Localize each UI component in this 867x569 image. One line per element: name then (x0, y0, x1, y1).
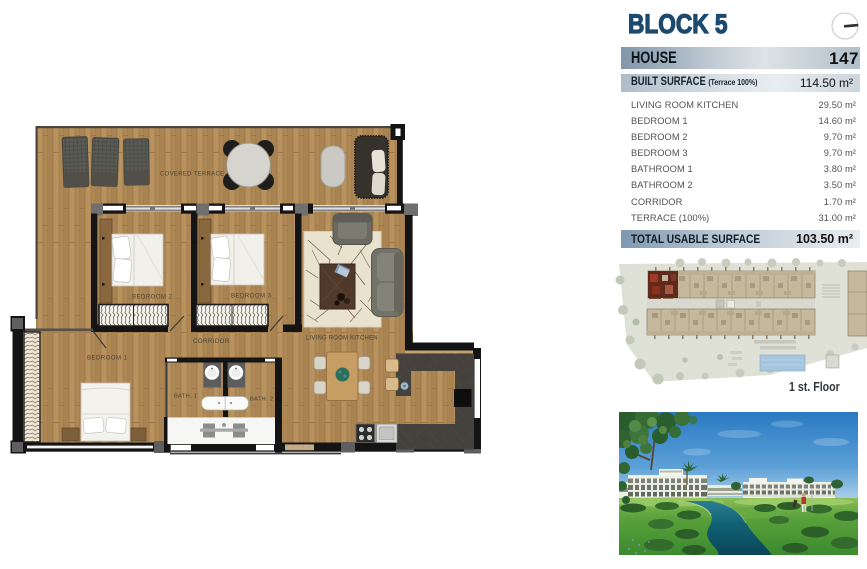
svg-text:CORRIDOR: CORRIDOR (193, 339, 230, 345)
svg-text:BEDROOM 3: BEDROOM 3 (231, 294, 272, 300)
svg-text:BEDROOM 1: BEDROOM 1 (87, 356, 128, 362)
svg-text:BEDROOM 2: BEDROOM 2 (132, 295, 173, 301)
svg-text:COVERED TERRACE: COVERED TERRACE (160, 172, 224, 178)
svg-text:BATH. 1: BATH. 1 (174, 394, 198, 400)
svg-text:BATH. 2: BATH. 2 (250, 397, 274, 403)
svg-text:LIVING ROOM KITCHEN: LIVING ROOM KITCHEN (306, 336, 378, 342)
